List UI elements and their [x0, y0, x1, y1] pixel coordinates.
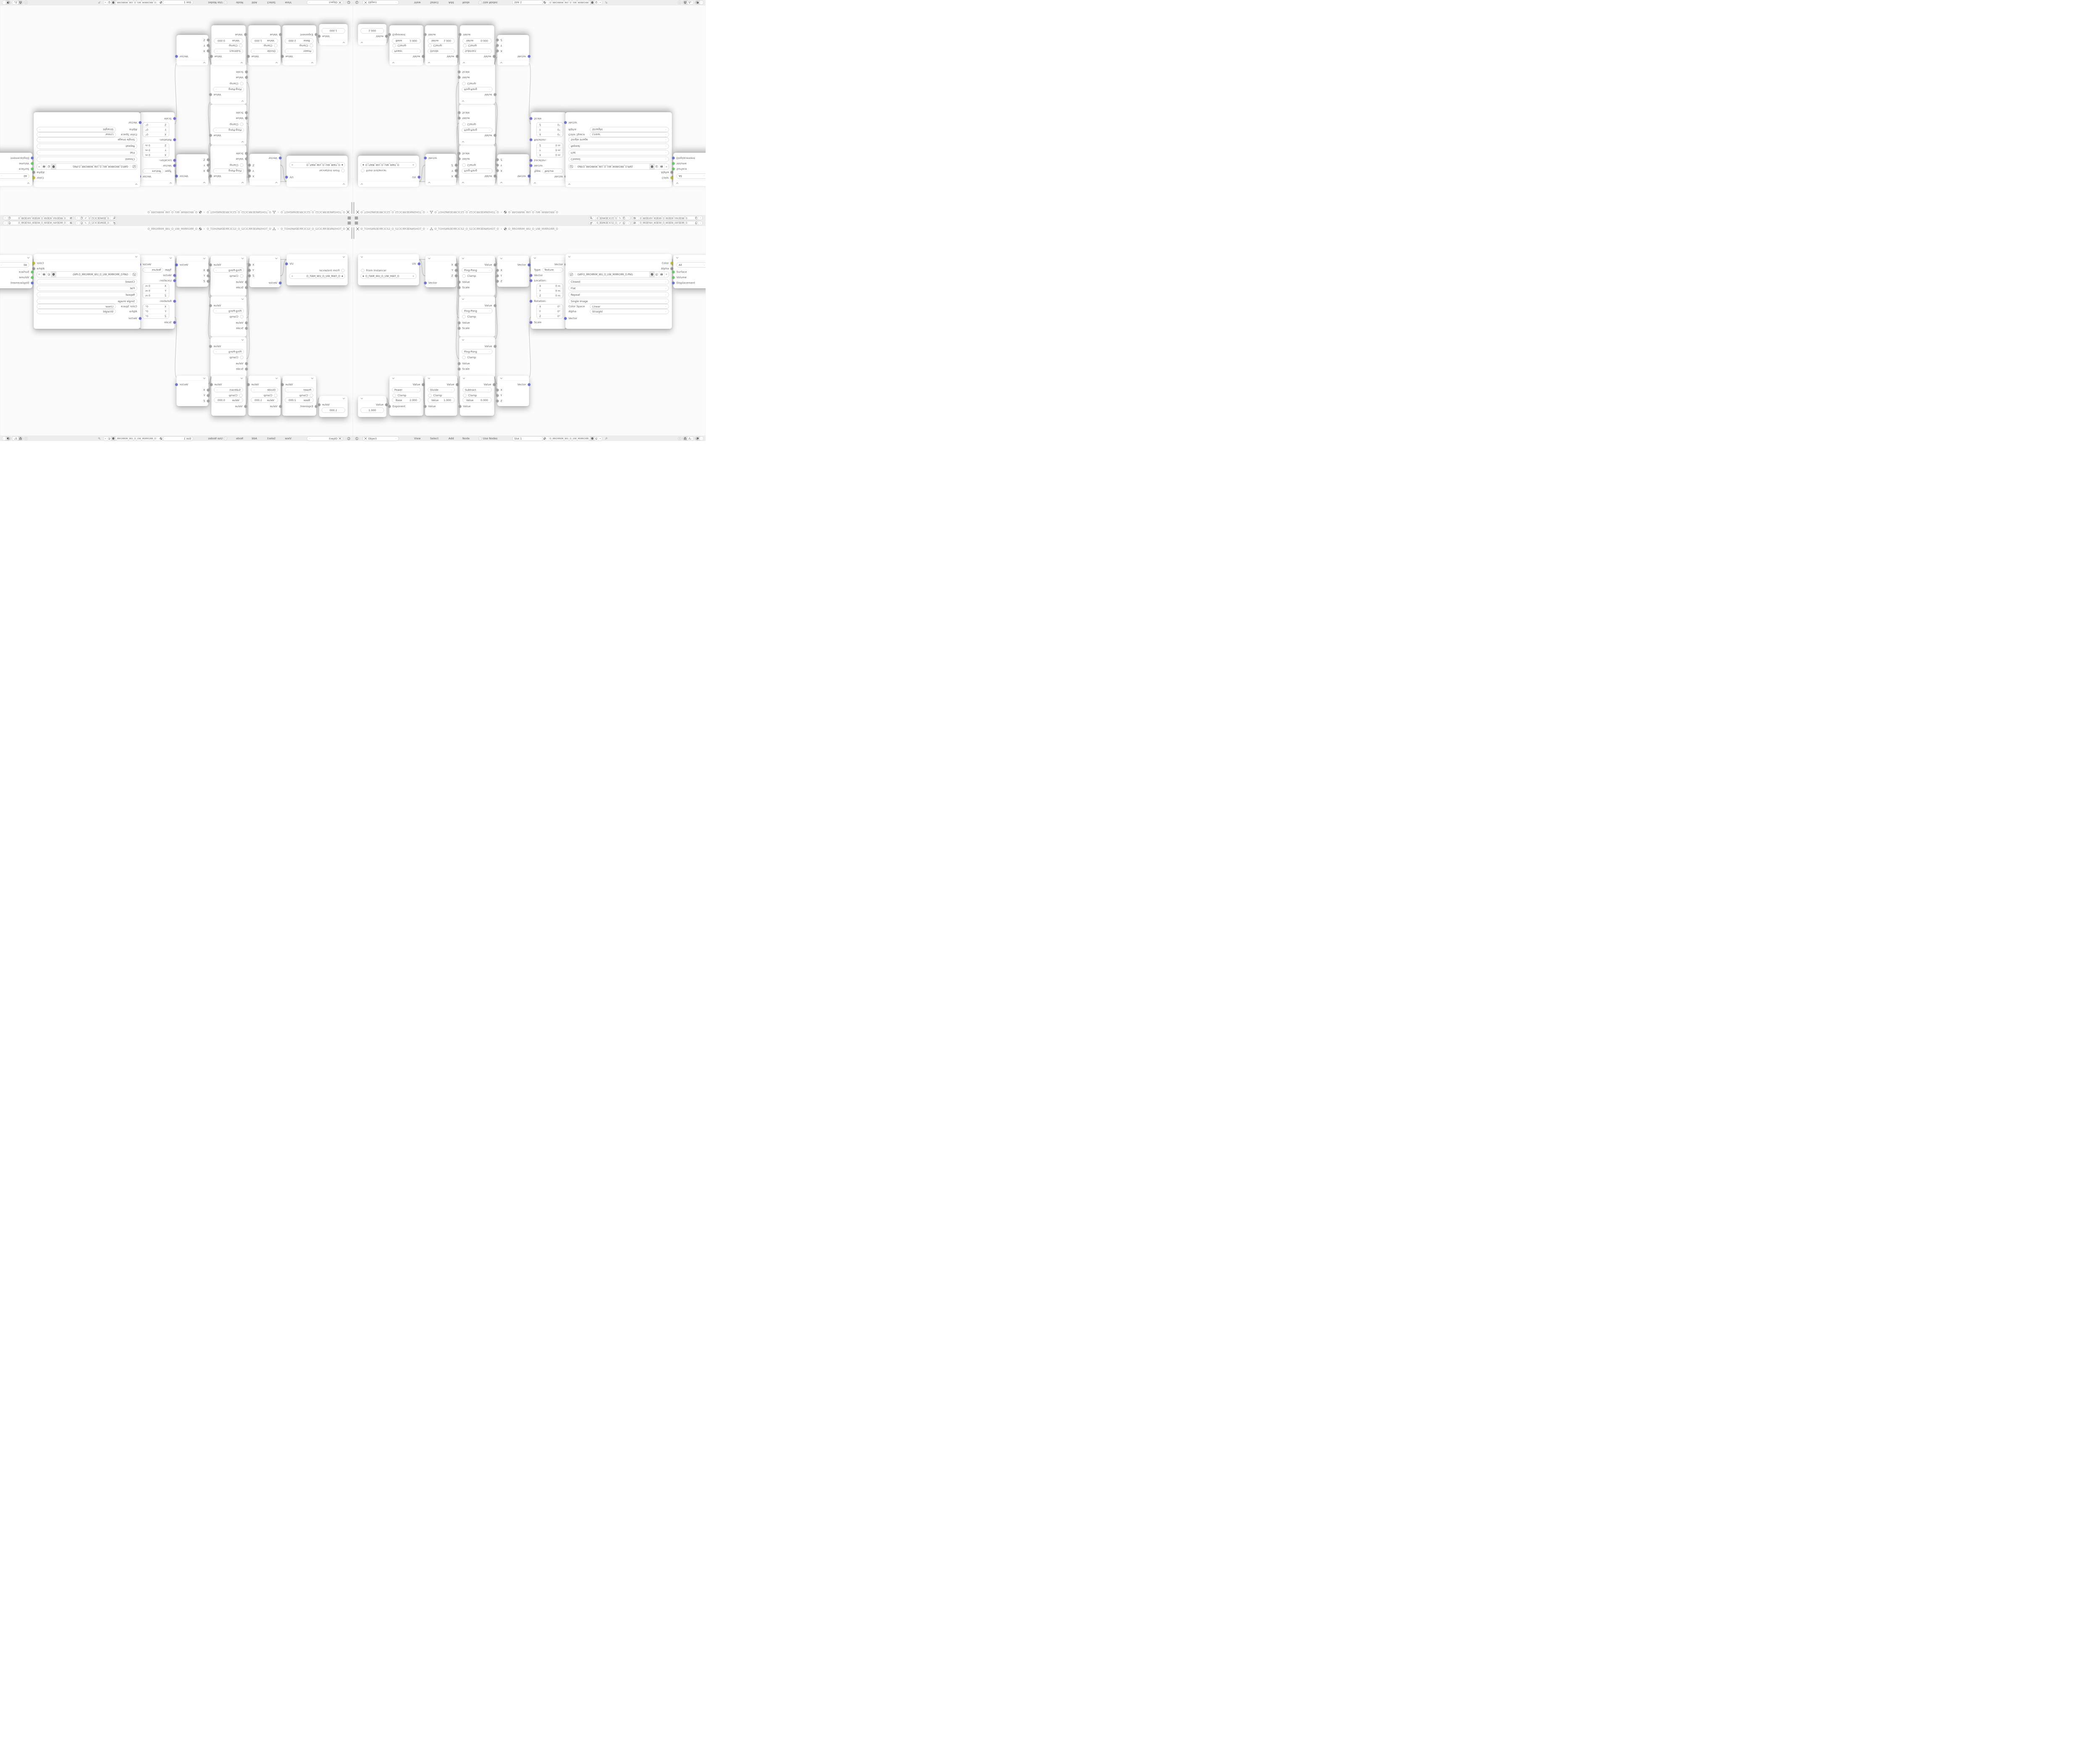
- operation-dropdown[interactable]: Ping-Pong⌄: [462, 168, 493, 173]
- scene-selector[interactable]: ⌄ O_ƎEИNƎEƆCS2_O_S2ƆCƎEИ... ×: [589, 221, 630, 225]
- location-fields[interactable]: X0 m Y0 m Z0 m: [537, 143, 563, 157]
- snap-magnet-icon[interactable]: [18, 437, 23, 441]
- output-target-dropdown[interactable]: All⌄: [0, 173, 29, 179]
- menu-view[interactable]: View: [285, 436, 291, 441]
- scrollbar[interactable]: [353, 202, 354, 214]
- menu-select[interactable]: Select: [267, 436, 276, 441]
- color-space-dropdown[interactable]: Linear⌄: [590, 304, 669, 309]
- breadcrumb-scene[interactable]: O_TOHSИNƎEЯRƆCS2_O_S2ƆCЯRƎENИSHOT_O: [281, 227, 345, 231]
- image-filename[interactable]: GИP.O_ЯROЯRIM_WU_O_UW_MIЯROЯR_O.PNG: [56, 165, 130, 168]
- node-collapse-chevron[interactable]: [0, 255, 32, 261]
- socket-value-output[interactable]: [494, 263, 497, 266]
- slot-dropdown[interactable]: Slot 1⌄: [163, 436, 193, 441]
- fake-user-shield-icon[interactable]: [51, 164, 56, 170]
- insert-offset-icon[interactable]: [677, 437, 681, 441]
- socket-y-input[interactable]: [496, 274, 499, 277]
- close-icon[interactable]: ×: [76, 222, 80, 225]
- copy-icon[interactable]: [79, 221, 84, 225]
- source-dropdown[interactable]: Single Image⌄: [569, 137, 669, 143]
- node-collapse-chevron[interactable]: [211, 256, 247, 262]
- from-instancer-checkbox[interactable]: [341, 269, 345, 272]
- socket-vector-output[interactable]: [528, 383, 531, 386]
- clear-icon[interactable]: ×: [291, 275, 294, 278]
- snap-magnet-icon[interactable]: [683, 437, 688, 441]
- clamp-checkbox[interactable]: [240, 356, 244, 359]
- mapping-type-dropdown[interactable]: Texture⌄: [543, 169, 563, 174]
- value-field[interactable]: 1.000: [361, 28, 384, 34]
- node-math-ping-pong-y[interactable]: Value Ping-Pong⌄ Clamp Value Scale: [210, 296, 247, 337]
- operation-dropdown[interactable]: Ping-Pong⌄: [213, 349, 244, 354]
- unlink-icon[interactable]: ×: [104, 0, 108, 5]
- scrollbar[interactable]: [353, 227, 354, 239]
- image-filename[interactable]: GИP.O_ЯROЯRIM_WU_O_UW_MIЯROЯR_O.PNG: [575, 165, 649, 168]
- socket-y-output[interactable]: [455, 269, 458, 272]
- menu-select[interactable]: Select: [430, 0, 438, 5]
- socket-value-output[interactable]: [422, 383, 425, 386]
- rotation-fields[interactable]: X0° Y0° Z0°: [537, 122, 563, 137]
- scene-name[interactable]: O_ƎEИNƎEƆCS2_O_S2ƆCƎEИ...: [595, 217, 618, 219]
- node-collapse-chevron[interactable]: [425, 256, 456, 262]
- operation-dropdown[interactable]: Subtract⌄: [463, 387, 492, 392]
- node-collapse-chevron[interactable]: [34, 254, 140, 260]
- socket-value-input[interactable]: [458, 117, 461, 120]
- node-math-ping-pong-z[interactable]: Value Ping-Pong⌄ Clamp Value Scale: [210, 63, 247, 104]
- fake-user-shield-icon[interactable]: [590, 436, 594, 441]
- node-combine-xyz-scale[interactable]: Vector X Y Z: [497, 35, 529, 66]
- copy-icon[interactable]: [694, 216, 698, 220]
- node-collapse-chevron[interactable]: [358, 181, 419, 187]
- socket-vector-output[interactable]: [175, 383, 178, 386]
- value-field[interactable]: Value1.000: [251, 397, 278, 403]
- node-collapse-chevron[interactable]: [390, 376, 423, 381]
- node-collapse-chevron[interactable]: [498, 180, 529, 186]
- node-math-subtract[interactable]: Value Subtract⌄ Clamp Value0.000 Value: [460, 25, 494, 66]
- close-icon[interactable]: ×: [3, 217, 8, 220]
- value-field[interactable]: Value1.000: [428, 38, 455, 44]
- node-collapse-chevron[interactable]: [425, 180, 456, 186]
- operation-dropdown[interactable]: Ping-Pong⌄: [213, 268, 244, 273]
- socket-vector-input[interactable]: [424, 281, 427, 284]
- socket-scale-input[interactable]: [458, 286, 461, 289]
- rotation-fields[interactable]: X0° Y0° Z0°: [143, 122, 169, 137]
- node-collapse-chevron[interactable]: [212, 376, 246, 381]
- unlink-icon[interactable]: ×: [664, 164, 669, 170]
- proportional-circles-icon[interactable]: [695, 1, 700, 5]
- extension-dropdown[interactable]: Repeat⌄: [569, 144, 669, 149]
- node-image-texture[interactable]: Color Alpha ⌄ GИP.O_ЯROЯRIM_WU_O_UW_MIЯR…: [34, 112, 140, 187]
- node-math-ping-pong-y[interactable]: Value Ping-Pong⌄ Clamp Value Scale: [210, 104, 247, 145]
- shader-type-dropdown[interactable]: Object ⌄: [307, 0, 344, 5]
- clamp-checkbox[interactable]: [240, 123, 244, 126]
- breadcrumb-scene[interactable]: O_TOHSИNƎEЯRƆCS2_O_S2ƆCЯRƎENИSHOT_O: [361, 210, 425, 214]
- socket-scale-input[interactable]: [173, 321, 176, 324]
- location-fields[interactable]: X0 m Y0 m Z0 m: [143, 283, 169, 298]
- node-value[interactable]: Value 1.000: [319, 24, 348, 45]
- node-math-divide[interactable]: Value Divide⌄ Clamp Value1.000 Value: [248, 375, 281, 416]
- node-math-subtract[interactable]: Value Subtract⌄ Clamp Value0.000 Value: [211, 25, 246, 66]
- socket-z-input[interactable]: [496, 158, 499, 161]
- node-collapse-chevron[interactable]: [211, 180, 247, 186]
- uv-map-name-field[interactable]: O_ПAM_WU_O_UW_MAП_O×: [361, 273, 417, 279]
- node-collapse-chevron[interactable]: [531, 180, 566, 186]
- snap-target-dropdown[interactable]: ⌄: [688, 437, 693, 441]
- operation-dropdown[interactable]: Power⌄: [392, 49, 421, 54]
- scene-name[interactable]: O_ƎEИNƎEƆCS2_O_S2ƆCƎEИ...: [88, 222, 110, 224]
- unlink-icon[interactable]: ×: [664, 272, 669, 278]
- snap-target-dropdown[interactable]: ⌄: [12, 437, 18, 441]
- socket-z-input[interactable]: [496, 39, 499, 42]
- socket-value-input[interactable]: [424, 33, 427, 36]
- socket-z-input[interactable]: [496, 280, 499, 283]
- copy-icon[interactable]: [622, 216, 626, 220]
- socket-x-output[interactable]: [248, 263, 251, 266]
- socket-value-input[interactable]: [245, 321, 248, 324]
- node-math-ping-pong-z[interactable]: Value Ping-Pong⌄ Clamp Value Scale: [459, 63, 495, 104]
- node-uv-map[interactable]: UV From Instancer O_ПAM_WU_O_UW_MAП_O×: [286, 156, 348, 187]
- breadcrumb-scene[interactable]: O_TOHSИNƎEЯRƆCS2_O_S2ƆCЯRƎENИSHOT_O: [281, 210, 345, 214]
- socket-rotation-input[interactable]: [530, 300, 533, 303]
- shader-type-dropdown[interactable]: Object ⌄: [362, 0, 399, 5]
- socket-y-input[interactable]: [496, 44, 499, 47]
- breadcrumb-object[interactable]: O_TOHSИNƎEЯRƆCS2_O_S2ƆCЯRƎENИSHOT_O: [435, 210, 499, 214]
- value-field[interactable]: Value1.000: [251, 38, 278, 44]
- socket-value-output[interactable]: [209, 175, 212, 178]
- socket-z-output[interactable]: [455, 274, 458, 277]
- node-uv-map[interactable]: UV From Instancer O_ПAM_WU_O_UW_MAП_O×: [358, 254, 419, 286]
- clear-icon[interactable]: ×: [291, 163, 294, 166]
- socket-scale-input[interactable]: [458, 71, 461, 73]
- socket-location-input[interactable]: [530, 279, 533, 282]
- material-icon[interactable]: ⌄: [157, 0, 163, 5]
- snap-magnet-icon[interactable]: [683, 1, 688, 5]
- scrollbar[interactable]: [351, 202, 352, 214]
- output-target-dropdown[interactable]: All⌄: [0, 262, 29, 268]
- socket-vector-input[interactable]: [139, 317, 142, 320]
- socket-volume-input[interactable]: [672, 276, 675, 279]
- node-value[interactable]: Value 1.000: [358, 396, 387, 417]
- operation-dropdown[interactable]: Subtract⌄: [214, 387, 243, 392]
- socket-surface-input[interactable]: [672, 168, 675, 171]
- close-icon[interactable]: ×: [698, 217, 703, 220]
- node-material-output[interactable]: All⌄ Surface Volume Displacement: [0, 255, 32, 289]
- node-math-ping-pong-z[interactable]: Value Ping-Pong⌄ Clamp Value Scale: [210, 337, 247, 378]
- operation-dropdown[interactable]: Ping-Pong⌄: [213, 308, 244, 313]
- rotation-fields[interactable]: X0° Y0° Z0°: [537, 304, 563, 319]
- projection-dropdown[interactable]: Flat⌄: [569, 286, 669, 291]
- operation-dropdown[interactable]: Ping-Pong⌄: [462, 349, 493, 354]
- scrollbar[interactable]: [351, 227, 352, 239]
- unlink-icon[interactable]: ×: [37, 272, 42, 278]
- node-math-power[interactable]: Value Power⌄ Clamp Base2.000 Exponent: [282, 25, 316, 66]
- node-collapse-chevron[interactable]: [459, 256, 495, 262]
- socket-scale-input[interactable]: [245, 286, 248, 289]
- copy-icon[interactable]: [622, 221, 626, 225]
- view-layer-selector[interactable]: ⌄ O_ЯRƎEYAΛ_WƎEIW_O_WIƎEW_ΛAYƎEЯR_O ×: [3, 221, 73, 225]
- node-mapping[interactable]: Vector Type:Texture⌄ Vector Location: X0…: [531, 112, 566, 186]
- socket-scale-input[interactable]: [245, 367, 248, 370]
- interpolation-dropdown[interactable]: Closest⌄: [37, 157, 137, 162]
- chevron-down-icon[interactable]: ⌄: [3, 437, 6, 441]
- use-nodes-toggle[interactable]: ✓ Use Nodes: [478, 0, 498, 5]
- socket-value-output[interactable]: [385, 403, 388, 406]
- copy-icon[interactable]: [107, 436, 111, 441]
- socket-rotation-input[interactable]: [173, 300, 176, 303]
- socket-x-input[interactable]: [207, 269, 210, 272]
- socket-value-input[interactable]: [458, 362, 461, 365]
- node-collapse-chevron[interactable]: [460, 60, 494, 66]
- socket-value-output[interactable]: [494, 345, 497, 348]
- socket-value-input[interactable]: [245, 362, 248, 365]
- node-collapse-chevron[interactable]: [425, 60, 457, 66]
- socket-exponent-input[interactable]: [315, 405, 318, 408]
- node-collapse-chevron[interactable]: [249, 256, 280, 262]
- node-math-ping-pong-x[interactable]: Value Ping-Pong⌄ Clamp Value Scale: [210, 255, 247, 296]
- breadcrumb-object[interactable]: O_TOHSИNƎEЯRƆCS2_O_S2ƆCЯRƎENИSHOT_O: [207, 227, 271, 231]
- socket-value-input[interactable]: [245, 281, 248, 283]
- node-canvas[interactable]: O_TOHSИNƎEЯRƆCS2_O_S2ƆCЯRƎENИSHOT_O › O_…: [353, 5, 706, 215]
- chevron-down-icon[interactable]: ⌄: [700, 437, 703, 441]
- node-collapse-chevron[interactable]: [177, 376, 208, 381]
- interpolation-dropdown[interactable]: Closest⌄: [569, 157, 669, 162]
- socket-vector-input[interactable]: [564, 317, 567, 320]
- socket-uv-output[interactable]: [285, 262, 288, 265]
- clamp-checkbox[interactable]: [462, 356, 466, 359]
- node-canvas[interactable]: O_TOHSИNƎEЯRƆCS2_O_S2ƆCЯRƎENИSHOT_O › O_…: [353, 226, 706, 436]
- pack-image-icon[interactable]: [42, 164, 47, 170]
- view-layer-selector[interactable]: ⌄ O_ЯRƎEYAΛ_WƎEIW_O_WIƎEW_ΛAYƎEЯR_O ×: [632, 216, 703, 220]
- new-image-icon[interactable]: [654, 272, 659, 278]
- clamp-checkbox[interactable]: [428, 44, 432, 47]
- fake-user-shield-icon[interactable]: [590, 0, 594, 5]
- socket-z-output[interactable]: [248, 164, 251, 167]
- menu-node[interactable]: Node: [462, 436, 470, 441]
- node-collapse-chevron[interactable]: [212, 60, 246, 66]
- node-collapse-chevron[interactable]: [358, 396, 387, 402]
- snap-magnet-icon[interactable]: [18, 1, 23, 5]
- node-material-output[interactable]: All⌄ Surface Volume Displacement: [673, 153, 706, 186]
- socket-surface-input[interactable]: [31, 270, 34, 273]
- operation-dropdown[interactable]: Divide⌄: [251, 49, 278, 54]
- socket-value-output[interactable]: [318, 403, 321, 406]
- use-nodes-checkbox[interactable]: ✓: [224, 437, 227, 440]
- menu-view[interactable]: View: [414, 436, 420, 441]
- insert-offset-icon[interactable]: [24, 437, 28, 441]
- value-field[interactable]: Value0.000: [214, 38, 243, 44]
- pack-image-icon[interactable]: [659, 272, 664, 278]
- socket-y-input[interactable]: [496, 164, 499, 167]
- clamp-checkbox[interactable]: [240, 274, 244, 278]
- node-value[interactable]: Value 1.000: [358, 24, 387, 45]
- operation-dropdown[interactable]: Ping-Pong⌄: [213, 128, 244, 133]
- use-nodes-toggle[interactable]: ✓ Use Nodes: [208, 436, 227, 441]
- menu-icon[interactable]: [348, 217, 351, 219]
- output-target-dropdown[interactable]: All⌄: [677, 262, 706, 268]
- node-separate-xyz[interactable]: X Y Z Vector: [425, 154, 457, 186]
- socket-value-input[interactable]: [458, 157, 461, 160]
- operation-dropdown[interactable]: Ping-Pong⌄: [462, 268, 493, 273]
- copy-icon[interactable]: [594, 0, 598, 5]
- socket-uv-output[interactable]: [418, 262, 421, 265]
- socket-rotation-input[interactable]: [530, 139, 533, 142]
- node-collapse-chevron[interactable]: [566, 181, 672, 187]
- socket-scale-input[interactable]: [458, 327, 461, 330]
- socket-displacement-input[interactable]: [31, 281, 34, 284]
- socket-value-input[interactable]: [458, 321, 461, 324]
- clamp-checkbox[interactable]: [274, 394, 278, 397]
- image-datablock-selector[interactable]: ⌄ GИP.O_ЯROЯRIM_WU_O_UW_MIЯROЯR_O.PNG ×: [37, 271, 137, 278]
- socket-value-output[interactable]: [281, 383, 284, 386]
- node-collapse-chevron[interactable]: [177, 60, 208, 66]
- scene-selector[interactable]: ⌄ O_ƎEИNƎEƆCS2_O_S2ƆCƎEИ... ×: [75, 221, 117, 225]
- node-math-divide[interactable]: Value Divide⌄ Clamp Value1.000 Value: [248, 25, 281, 66]
- view-layer-selector[interactable]: ⌄ O_ЯRƎEYAΛ_WƎEIW_O_WIƎEW_ΛAYƎEЯR_O ×: [632, 221, 703, 225]
- node-material-output[interactable]: All⌄ Surface Volume Displacement: [673, 255, 706, 289]
- node-collapse-chevron[interactable]: [34, 181, 140, 187]
- socket-scale-input[interactable]: [530, 117, 533, 120]
- node-collapse-chevron[interactable]: [390, 60, 423, 66]
- scene-selector[interactable]: ⌄ O_ƎEИNƎEƆCS2_O_S2ƆCƎEИ... ×: [75, 216, 117, 220]
- value-field[interactable]: 1.000: [322, 28, 345, 34]
- editor-type-selector[interactable]: ⌄: [355, 436, 360, 441]
- socket-y-input[interactable]: [496, 394, 499, 397]
- clear-icon[interactable]: ×: [412, 275, 414, 278]
- socket-value-input[interactable]: [244, 405, 247, 408]
- node-collapse-chevron[interactable]: [674, 181, 706, 186]
- node-image-texture[interactable]: Color Alpha ⌄ GИP.O_ЯROЯRIM_WU_O_UW_MIЯR…: [565, 112, 672, 187]
- menu-add[interactable]: Add: [449, 436, 454, 441]
- copy-icon[interactable]: [7, 221, 11, 225]
- node-math-ping-pong-z[interactable]: Value Ping-Pong⌄ Clamp Value Scale: [459, 337, 495, 378]
- scene-name[interactable]: O_ƎEИNƎEƆCS2_O_S2ƆCƎEИ...: [88, 217, 110, 219]
- node-combine-xyz-scale[interactable]: Vector X Y Z: [497, 375, 529, 406]
- socket-x-output[interactable]: [455, 263, 458, 266]
- socket-exponent-input[interactable]: [388, 405, 391, 408]
- operation-dropdown[interactable]: Power⌄: [285, 387, 314, 392]
- pack-image-icon[interactable]: [42, 272, 47, 278]
- mapping-type-dropdown[interactable]: Texture⌄: [143, 169, 163, 174]
- base-field[interactable]: Base2.000: [285, 397, 314, 403]
- node-math-ping-pong-y[interactable]: Value Ping-Pong⌄ Clamp Value Scale: [459, 296, 495, 337]
- operation-dropdown[interactable]: Power⌄: [285, 49, 314, 54]
- operation-dropdown[interactable]: Ping-Pong⌄: [462, 128, 493, 133]
- menu-node[interactable]: Node: [462, 0, 470, 5]
- socket-value-input[interactable]: [279, 405, 282, 408]
- clamp-checkbox[interactable]: [393, 394, 396, 397]
- use-nodes-toggle[interactable]: ✓ Use Nodes: [208, 0, 227, 5]
- material-name[interactable]: O_ЯROЯRIM_WU_O_UW_MIЯROЯR_O: [549, 436, 590, 441]
- fake-user-shield-icon[interactable]: [650, 272, 655, 278]
- operation-dropdown[interactable]: Ping-Pong⌄: [213, 87, 244, 92]
- clamp-checkbox[interactable]: [240, 315, 244, 318]
- socket-value-input[interactable]: [458, 76, 461, 79]
- socket-vector-input[interactable]: [173, 274, 176, 277]
- menu-add[interactable]: Add: [252, 436, 257, 441]
- pin-icon[interactable]: [605, 436, 608, 441]
- socket-vector-output[interactable]: [175, 55, 178, 58]
- node-combine-xyz-scale[interactable]: Vector X Y Z: [176, 35, 208, 66]
- socket-exponent-input[interactable]: [388, 33, 391, 36]
- breadcrumb-material[interactable]: O_ЯROЯRIM_WU_O_UW_MIЯROЯR_O: [147, 227, 197, 231]
- unlink-icon[interactable]: ×: [598, 436, 602, 441]
- socket-scale-input[interactable]: [458, 152, 461, 155]
- node-mapping[interactable]: Vector Type:Texture⌄ Vector Location: X0…: [139, 255, 175, 329]
- socket-x-input[interactable]: [496, 169, 499, 172]
- clamp-checkbox[interactable]: [463, 394, 467, 397]
- menu-icon[interactable]: [348, 222, 351, 224]
- node-image-texture[interactable]: Color Alpha ⌄ GИP.O_ЯROЯRIM_WU_O_UW_MIЯR…: [34, 254, 140, 329]
- node-collapse-chevron[interactable]: [140, 255, 175, 261]
- from-instancer-checkbox[interactable]: [341, 169, 345, 172]
- node-math-ping-pong-y[interactable]: Value Ping-Pong⌄ Clamp Value Scale: [459, 104, 495, 145]
- breadcrumb-object[interactable]: O_TOHSИNƎEЯRƆCS2_O_S2ƆCЯRƎENИSHOT_O: [435, 227, 499, 231]
- material-icon[interactable]: ⌄: [543, 0, 549, 5]
- node-combine-xyz[interactable]: Vector X Y Z: [497, 255, 529, 287]
- copy-icon[interactable]: [594, 436, 598, 441]
- projection-dropdown[interactable]: Flat⌄: [37, 150, 137, 156]
- node-collapse-chevron[interactable]: [460, 376, 494, 381]
- socket-value-output[interactable]: [247, 383, 250, 386]
- socket-value-output[interactable]: [456, 383, 459, 386]
- socket-vector-input[interactable]: [530, 164, 533, 167]
- socket-z-input[interactable]: [207, 280, 210, 283]
- socket-x-output[interactable]: [248, 175, 251, 178]
- menu-view[interactable]: View: [285, 0, 291, 5]
- node-separate-xyz[interactable]: X Y Z Vector: [249, 255, 281, 287]
- image-filename[interactable]: GИP.O_ЯROЯRIM_WU_O_UW_MIЯROЯR_O.PNG: [56, 273, 130, 276]
- node-math-power[interactable]: Value Power⌄ Clamp Base2.000 Exponent: [389, 375, 423, 416]
- location-fields[interactable]: X0 m Y0 m Z0 m: [537, 283, 563, 298]
- editor-type-selector[interactable]: ⌄: [355, 0, 360, 5]
- node-math-divide[interactable]: Value Divide⌄ Clamp Value1.000 Value: [425, 25, 457, 66]
- use-nodes-checkbox[interactable]: ✓: [224, 1, 227, 4]
- material-name[interactable]: O_ЯROЯRIM_WU_O_UW_MIЯROЯR_O: [115, 0, 157, 5]
- node-uv-map[interactable]: UV From Instancer O_ПAM_WU_O_UW_MAП_O×: [286, 254, 348, 286]
- interpolation-dropdown[interactable]: Closest⌄: [569, 279, 669, 285]
- alpha-mode-dropdown[interactable]: Straight⌄: [37, 127, 116, 132]
- unlink-icon[interactable]: ×: [598, 0, 602, 5]
- breadcrumb-material[interactable]: O_ЯROЯRIM_WU_O_UW_MIЯROЯR_O: [508, 210, 558, 214]
- socket-value-output[interactable]: [247, 55, 250, 58]
- fake-user-shield-icon[interactable]: [650, 164, 655, 170]
- pack-image-icon[interactable]: [659, 164, 664, 170]
- node-collapse-chevron[interactable]: [319, 40, 348, 45]
- socket-value-input[interactable]: [459, 405, 462, 408]
- menu-add[interactable]: Add: [449, 0, 454, 5]
- socket-scale-input[interactable]: [245, 327, 248, 330]
- rotation-fields[interactable]: X0° Y0° Z0°: [143, 304, 169, 319]
- node-math-subtract[interactable]: Value Subtract⌄ Clamp Value0.000 Value: [211, 375, 246, 416]
- clamp-checkbox[interactable]: [240, 82, 244, 85]
- close-icon[interactable]: ×: [698, 222, 703, 225]
- node-collapse-chevron[interactable]: [283, 60, 316, 66]
- node-collapse-chevron[interactable]: [459, 180, 495, 186]
- node-combine-xyz[interactable]: Vector X Y Z: [176, 255, 208, 287]
- value-field[interactable]: Value1.000: [428, 397, 455, 403]
- breadcrumb-material[interactable]: O_ЯROЯRIM_WU_O_UW_MIЯROЯR_O: [147, 210, 197, 214]
- proportional-circles-icon[interactable]: [695, 437, 700, 441]
- node-uv-map[interactable]: UV From Instancer O_ПAM_WU_O_UW_MAП_O×: [358, 156, 419, 187]
- node-separate-xyz[interactable]: X Y Z Vector: [249, 154, 281, 186]
- unlink-icon[interactable]: ×: [104, 436, 108, 441]
- breadcrumb-object[interactable]: O_TOHSИNƎEЯRƆCS2_O_S2ƆCЯRƎENИSHOT_O: [207, 210, 271, 214]
- clamp-checkbox[interactable]: [462, 123, 466, 126]
- menu-select[interactable]: Select: [267, 0, 276, 5]
- fake-user-shield-icon[interactable]: [111, 436, 115, 441]
- node-collapse-chevron[interactable]: [249, 376, 281, 381]
- socket-value-output[interactable]: [209, 304, 212, 307]
- uv-map-name-field[interactable]: O_ПAM_WU_O_UW_MAП_O×: [361, 162, 417, 168]
- node-collapse-chevron[interactable]: [283, 376, 316, 381]
